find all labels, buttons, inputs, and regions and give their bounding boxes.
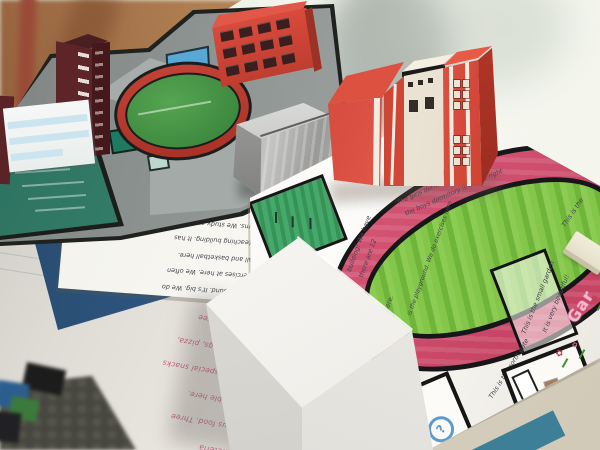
photo-vignette	[0, 0, 600, 450]
diorama-photo: I love to play No 80 High school's cafet…	[0, 0, 600, 450]
